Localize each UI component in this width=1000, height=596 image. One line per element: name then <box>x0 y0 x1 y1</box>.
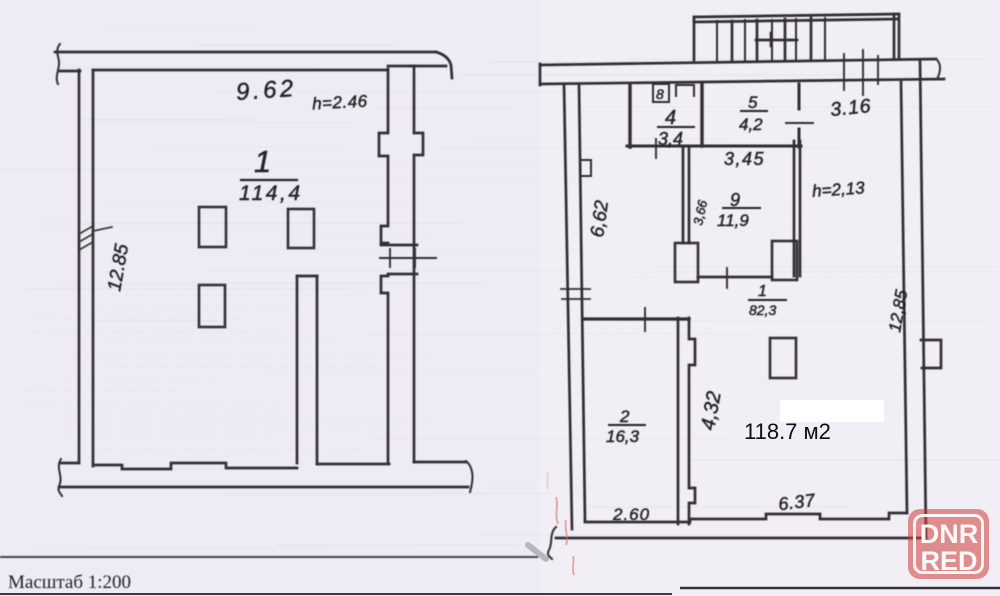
svg-text:3,4: 3,4 <box>658 129 683 149</box>
svg-text:1: 1 <box>758 283 767 300</box>
svg-text:4,2: 4,2 <box>739 115 763 134</box>
svg-text:2: 2 <box>619 407 630 426</box>
svg-text:3.16: 3.16 <box>829 95 872 121</box>
svg-text:3,45: 3,45 <box>724 149 765 169</box>
svg-text:h=2,13: h=2,13 <box>812 178 866 201</box>
svg-text:9.62: 9.62 <box>235 75 297 106</box>
svg-text:DNR: DNR <box>920 519 979 549</box>
svg-text:h=2.46: h=2.46 <box>312 92 368 114</box>
svg-text:4: 4 <box>665 107 676 129</box>
svg-text:16,3: 16,3 <box>606 427 640 446</box>
svg-text:114,4: 114,4 <box>239 182 303 205</box>
svg-text:Масштаб 1:200: Масштаб 1:200 <box>8 572 131 593</box>
svg-text:5: 5 <box>748 93 758 112</box>
svg-text:8: 8 <box>656 86 664 102</box>
svg-text:82,3: 82,3 <box>749 302 776 318</box>
svg-text:2.60: 2.60 <box>612 505 650 524</box>
svg-text:1: 1 <box>254 144 271 179</box>
svg-text:118.7 м2: 118.7 м2 <box>744 419 831 444</box>
svg-text:RED: RED <box>920 546 977 576</box>
svg-text:11,9: 11,9 <box>717 211 749 230</box>
